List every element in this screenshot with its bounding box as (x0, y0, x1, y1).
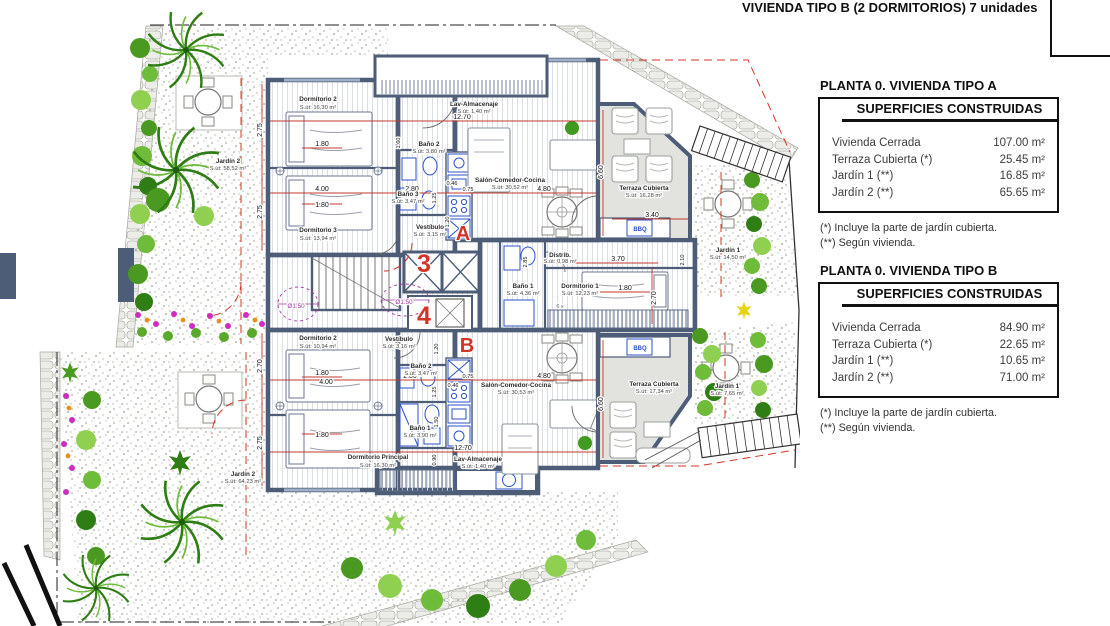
panel-vivienda-tipo-a: PLANTA 0. VIVIENDA TIPO A SUPERFICIES CO… (818, 78, 1059, 251)
row-value: 71.00 m² (1000, 370, 1045, 387)
row-label: Jardín 2 (**) (832, 370, 893, 387)
room-a-lav-name: Lav-Almacenaje (450, 101, 498, 108)
wardrobe-dorm1 (548, 310, 688, 328)
footnote: (*) Incluye la parte de jardín cubierta. (820, 221, 1059, 236)
dim: 1.20 (434, 344, 440, 355)
wardrobe-note: 6 x (556, 304, 564, 310)
dim: 1.25 (432, 387, 438, 398)
room-b-salon-name: Salón-Comedor-Cocina (481, 382, 551, 389)
dim: 2.75 (257, 205, 264, 219)
bbq-counter-b: BBQ (600, 337, 670, 357)
turning-circle-dim-right: Ø1.50 (395, 299, 413, 306)
row-value: 25.45 m² (1000, 152, 1045, 169)
dim: 4.00 (315, 186, 329, 193)
dim: 2.10 (680, 255, 686, 266)
room-a-vest-name: Vestíbulo (416, 224, 444, 231)
row-label: Terraza Cubierta (*) (832, 337, 932, 354)
row-value: 22.65 m² (1000, 337, 1045, 354)
dim: 4.00 (319, 379, 333, 386)
room-b-bano1-area: S.út: 3,90 m² (403, 433, 436, 439)
room-a-terraza-area: S.út: 16,28 m² (626, 193, 662, 199)
dim: 1.50 (434, 417, 440, 428)
dim: 1.80 (315, 370, 329, 377)
room-a-dorm3-area: S.út: 13,94 m² (300, 236, 336, 242)
dim: 4.80 (537, 373, 551, 380)
dim: 0.75 (463, 187, 474, 193)
room-a-jardin2-area: S.út: 58,52 m² (210, 166, 246, 172)
room-a-dorm1-area: S.út: 12,23 m² (562, 291, 598, 297)
room-b-salon-area: S.út: 30,53 m² (498, 390, 534, 396)
room-b-terraza-area: S.út: 17,34 m² (636, 389, 672, 395)
room-a-bano1-name: Baño 1 (513, 283, 534, 290)
room-a-jardin1-area: S.út: 14,50 m² (710, 255, 746, 261)
dim: 12.70 (453, 114, 471, 121)
room-b-jardin2-name: Jardín 2 (231, 471, 256, 478)
room-b-bano2-area: S.út: 3,47 m² (404, 371, 437, 377)
bbq-counter-a: BBQ (600, 218, 670, 238)
dim: 1.25 (432, 193, 438, 204)
panel-a-heading: PLANTA 0. VIVIENDA TIPO A (820, 78, 1059, 93)
panel-a-table-title: SUPERFICIES CONSTRUIDAS (842, 99, 1057, 122)
room-b-jardin1-name: Jardín 1 (715, 383, 740, 390)
floor-plan-sheet: VIVIENDA TIPO B (2 DORMITORIOS) 7 unidad… (0, 0, 1110, 626)
deck-strip (380, 470, 454, 491)
room-b-jardin2-area: S.út: 64,23 m² (225, 479, 261, 485)
bbq-label-b: BBQ (633, 346, 647, 352)
row-value: 107.00 m² (993, 135, 1045, 152)
room-a-dorm2-name: Dormitorio 2 (299, 96, 337, 103)
dim: 2.75 (257, 436, 264, 450)
row-value: 65.65 m² (1000, 185, 1045, 202)
footnote: (**) Según vivienda. (820, 421, 1059, 436)
footnote: (*) Incluye la parte de jardín cubierta. (820, 406, 1059, 421)
room-b-dorm2-area: S.út: 10,94 m² (300, 344, 336, 350)
table-row: Terraza Cubierta (*) 22.65 m² (832, 337, 1045, 354)
dim: 1.60 (396, 138, 402, 149)
dim: 0.46 (448, 383, 459, 389)
room-b-dorm2-name: Dormitorio 2 (299, 335, 337, 342)
room-a-jardin1-name: Jardín 1 (716, 247, 741, 254)
row-label: Jardín 2 (**) (832, 185, 893, 202)
dim: 1.80 (618, 285, 632, 292)
table-row: Vivienda Cerrada 107.00 m² (832, 135, 1045, 152)
table-row: Jardín 2 (**) 65.65 m² (832, 185, 1045, 202)
room-a-dorm3-name: Dormitorio 3 (299, 227, 337, 234)
dim: 3.40 (645, 212, 659, 219)
dim: 12.70 (454, 445, 472, 452)
table-row: Jardín 2 (**) 71.00 m² (832, 370, 1045, 387)
marker-unit-b: B (460, 335, 474, 357)
room-a-distrib-area: S.út: 0,98 m² (543, 259, 576, 265)
room-a-salon-area: S.út: 30,52 m² (492, 185, 528, 191)
room-a-bano2-area: S.út: 3,80 m² (412, 149, 445, 155)
dim: 3.70 (611, 256, 625, 263)
dim: 1.80 (315, 141, 329, 148)
dim: 4.80 (537, 186, 551, 193)
marker-unit-3: 3 (417, 250, 431, 278)
room-b-dormp-name: Dormitorio Principal (348, 454, 409, 461)
row-label: Vivienda Cerrada (832, 320, 921, 337)
room-a-bano1-area: S.út: 4,36 m² (506, 291, 539, 297)
dim: 0.46 (447, 181, 458, 187)
room-a-salon-name: Salón-Comedor-Cocina (475, 177, 545, 184)
room-a-lav-area: S.út: 1,40 m² (457, 109, 490, 115)
table-row: Vivienda Cerrada 84.90 m² (832, 320, 1045, 337)
row-label: Terraza Cubierta (*) (832, 152, 932, 169)
row-value: 10.65 m² (1000, 353, 1045, 370)
room-a-vest-area: S.út: 3,15 m² (413, 232, 446, 238)
bbq-label-a: BBQ (633, 227, 647, 233)
dim: 0.75 (463, 374, 474, 380)
panel-b-footnotes: (*) Incluye la parte de jardín cubierta.… (820, 406, 1059, 436)
panel-b-table: SUPERFICIES CONSTRUIDAS Vivienda Cerrada… (818, 282, 1059, 398)
site-plan-drawing: BBQ BBQ (0, 0, 800, 626)
dim: 2.70 (257, 359, 264, 373)
room-a-bano2-name: Baño 2 (419, 141, 440, 148)
dim: 2.70 (651, 291, 658, 305)
room-b-vest-name: Vestíbulo (385, 336, 413, 343)
dim: 2.85 (523, 257, 529, 268)
panel-a-table: SUPERFICIES CONSTRUIDAS Vivienda Cerrada… (818, 97, 1059, 213)
room-b-bano1-name: Baño 1 (410, 425, 431, 432)
panel-b-table-title: SUPERFICIES CONSTRUIDAS (842, 284, 1057, 307)
dim: 1.80 (315, 202, 329, 209)
room-a-bano3-area: S.út: 3,47 m² (391, 199, 424, 205)
dim: 6.60 (598, 397, 605, 411)
title-block-vline (1050, 0, 1052, 56)
title-block-hline (1050, 55, 1110, 57)
room-b-lav-name: Lav-Almacenaje (454, 456, 502, 463)
table-row: Terraza Cubierta (*) 25.45 m² (832, 152, 1045, 169)
dim: 1.20 (445, 217, 451, 228)
dim: 0.90 (432, 455, 438, 466)
panel-vivienda-tipo-b: PLANTA 0. VIVIENDA TIPO B SUPERFICIES CO… (818, 263, 1059, 436)
dim: 1.80 (315, 432, 329, 439)
room-a-dorm1-name: Dormitorio 1 (561, 283, 599, 290)
room-a-bano3-name: Baño 3 (398, 191, 419, 198)
room-b-terraza-name: Terraza Cubierta (629, 381, 679, 388)
marker-unit-4: 4 (417, 302, 431, 330)
row-label: Vivienda Cerrada (832, 135, 921, 152)
room-b-lav-area: S.út: 1,40 m² (461, 464, 494, 470)
room-b-jardin1-area: S.út: 7,65 m² (710, 391, 743, 397)
room-b-bano2-name: Baño 2 (411, 363, 432, 370)
kitchen-unit-b (446, 358, 472, 448)
table-row: Jardín 1 (**) 16.85 m² (832, 168, 1045, 185)
marker-unit-a: A (456, 223, 470, 245)
table-row: Jardín 1 (**) 10.65 m² (832, 353, 1045, 370)
room-a-distrib-name: Distrib. (549, 252, 571, 259)
turning-circle-dim-left: Ø1.50 (287, 303, 305, 310)
room-b-dormp-area: S.út: 16,30 m² (360, 463, 396, 469)
row-value: 84.90 m² (1000, 320, 1045, 337)
row-label: Jardín 1 (**) (832, 353, 893, 370)
dim: 6.60 (598, 165, 605, 179)
room-a-terraza-name: Terraza Cubierta (619, 185, 669, 192)
panel-b-heading: PLANTA 0. VIVIENDA TIPO B (820, 263, 1059, 278)
dim: 2.75 (257, 123, 264, 137)
room-b-vest-area: S.út: 3,16 m² (382, 344, 415, 350)
row-value: 16.85 m² (1000, 168, 1045, 185)
row-label: Jardín 1 (**) (832, 168, 893, 185)
room-a-dorm2-area: S.út: 16,30 m² (300, 105, 336, 111)
panel-a-footnotes: (*) Incluye la parte de jardín cubierta.… (820, 221, 1059, 251)
footnote: (**) Según vivienda. (820, 236, 1059, 251)
room-a-jardin2-name: Jardín 2 (216, 158, 241, 165)
